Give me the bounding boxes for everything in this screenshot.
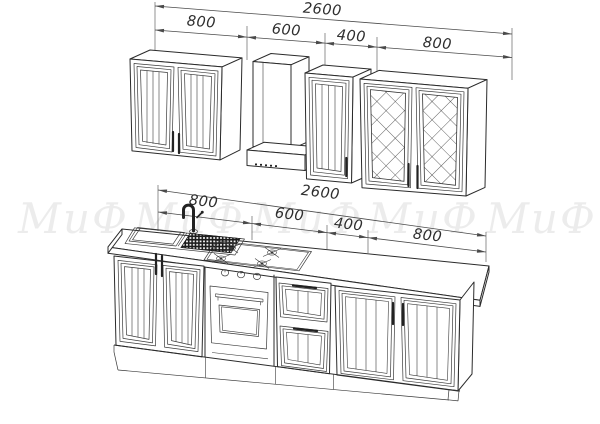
dimension-label: 400 [333,215,364,234]
watermark-text: МиФ [17,194,129,243]
kitchen-technical-drawing: МиФ МиФ МиФ МиФ МиФ 2600 800 600 400 800 [0,0,600,424]
sink-base-cabinet [114,254,204,357]
dimension-label: 800 [422,35,452,53]
lattice-glass-panel [423,94,458,185]
drawer-unit [276,277,331,374]
dimension-label-total-top: 2600 [302,1,342,20]
upper-cabinet-lattice-800 [360,70,487,196]
dimension-label: 600 [274,205,305,224]
dimension-label: 400 [336,27,366,45]
watermark-row: МиФ МиФ МиФ МиФ МиФ [17,194,597,243]
dimension-label: 600 [271,21,301,39]
watermark-text: МиФ [485,194,597,243]
lattice-glass-panel [371,90,406,182]
drawing-canvas: МиФ МиФ МиФ МиФ МиФ 2600 800 600 400 800 [0,0,600,424]
upper-cabinet-left-800 [130,50,242,160]
dimension-label: 800 [186,13,216,31]
dimension-label: 800 [412,226,443,245]
